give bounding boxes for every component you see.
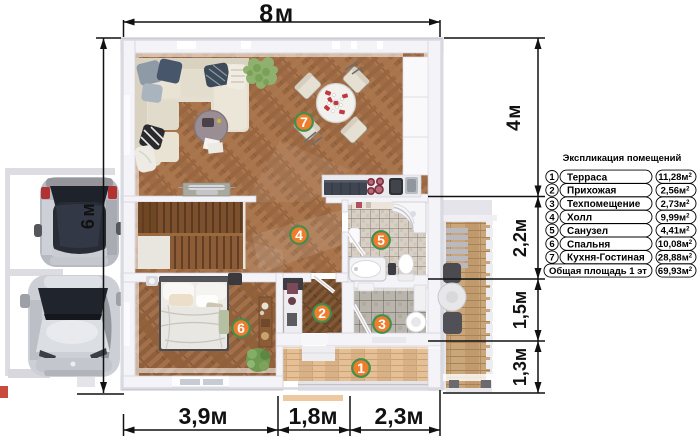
svg-text:2: 2 <box>318 305 326 321</box>
svg-text:2,2м: 2,2м <box>510 219 530 257</box>
svg-text:2,3м: 2,3м <box>375 403 424 429</box>
svg-text:Спальня: Спальня <box>567 239 610 250</box>
svg-text:Санузел: Санузел <box>567 226 608 237</box>
svg-text:6: 6 <box>237 320 245 336</box>
svg-text:Экспликация помещений: Экспликация помещений <box>563 153 682 164</box>
svg-text:1,5м: 1,5м <box>510 291 530 329</box>
svg-text:6м: 6м <box>78 201 98 229</box>
svg-text:11,28м2: 11,28м2 <box>658 172 692 183</box>
svg-text:Общая площадь 1 эт: Общая площадь 1 эт <box>549 266 647 277</box>
svg-text:Прихожая: Прихожая <box>567 186 617 197</box>
svg-text:4: 4 <box>295 227 303 243</box>
svg-text:4: 4 <box>549 212 555 223</box>
svg-text:Техпомещение: Техпомещение <box>567 199 641 210</box>
svg-text:Кухня-Гостиная: Кухня-Гостиная <box>567 253 645 264</box>
svg-text:28,88м2: 28,88м2 <box>658 253 693 264</box>
svg-text:10,08м2: 10,08м2 <box>658 239 693 250</box>
svg-text:Терраса: Терраса <box>567 172 608 183</box>
svg-text:8м: 8м <box>259 0 294 28</box>
svg-text:Холл: Холл <box>567 213 592 224</box>
svg-text:2: 2 <box>549 186 554 197</box>
svg-text:3: 3 <box>549 199 554 210</box>
svg-text:4,41м2: 4,41м2 <box>661 226 691 237</box>
svg-text:2,73м2: 2,73м2 <box>661 199 691 210</box>
svg-text:3,9м: 3,9м <box>179 403 228 429</box>
svg-text:5: 5 <box>549 226 555 237</box>
svg-text:9,99м2: 9,99м2 <box>661 212 691 223</box>
svg-text:7: 7 <box>549 253 554 264</box>
svg-text:1,8м: 1,8м <box>289 403 338 429</box>
svg-text:4м: 4м <box>504 103 525 131</box>
svg-text:7: 7 <box>300 114 308 130</box>
svg-text:1: 1 <box>549 172 555 183</box>
svg-text:2,56м2: 2,56м2 <box>661 186 691 197</box>
svg-text:5: 5 <box>377 232 385 248</box>
svg-text:6: 6 <box>549 239 554 250</box>
svg-text:1,3м: 1,3м <box>510 348 530 386</box>
svg-text:69,93м2: 69,93м2 <box>658 266 693 277</box>
svg-text:3: 3 <box>378 316 386 332</box>
svg-text:1: 1 <box>357 360 365 376</box>
